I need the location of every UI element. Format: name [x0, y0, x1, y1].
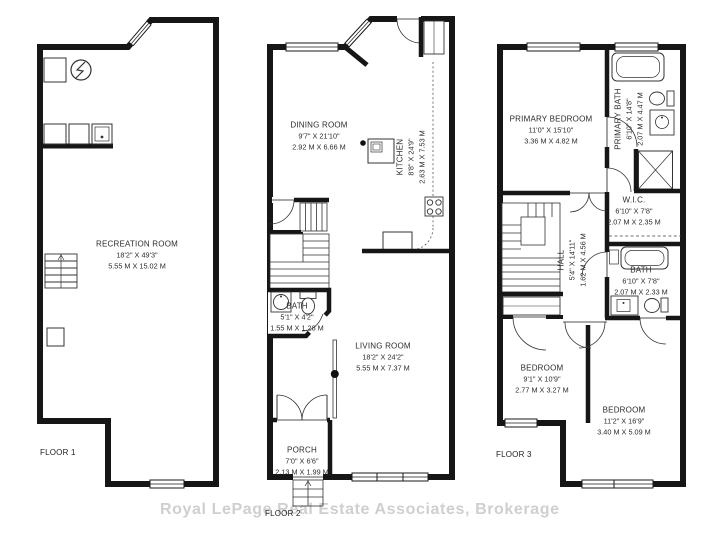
room-label-hall: HALL 5'4" X 14'11" 1.62 M X 4.56 M	[557, 233, 588, 287]
watermark: Royal LePage Real Estate Associates, Bro…	[160, 501, 558, 519]
room-label-bath-floor2: BATH 5'1" X 4'2" 1.55 M X 1.28 M	[270, 302, 324, 333]
room-label-kitchen: KITCHEN 8'8" X 24'9" 2.63 M X 7.53 M	[396, 130, 427, 184]
room-label-wic: W.I.C. 6'10" X 7'8" 2.07 M X 2.35 M	[607, 196, 661, 227]
vanity-sink	[611, 296, 638, 315]
mechanical-box	[47, 328, 64, 346]
shower	[636, 149, 673, 191]
room-label-dining-room: DINING ROOM 9'7" X 21'10" 2.92 M X 6.66 …	[290, 121, 347, 152]
bathtub	[612, 53, 664, 81]
room-label-bedroom-small: BEDROOM 9'1" X 10'9" 2.77 M X 3.27 M	[515, 364, 569, 395]
floor-1-bottom-window	[150, 480, 184, 488]
living-room-windows	[352, 473, 428, 481]
kitchen-peninsula	[383, 232, 412, 250]
room-label-recreation-room: RECREATION ROOM 18'2" X 49'3" 5.55 M X 1…	[96, 240, 178, 271]
room-label-primary-bath: PRIMARY BATH 6'10" X 14'8" 2.07 M X 4.47…	[614, 88, 645, 150]
room-label-bedroom-large: BEDROOM 11'2" X 16'9" 3.40 M X 5.09 M	[597, 406, 651, 437]
floor-1-label: FLOOR 1	[40, 448, 76, 457]
room-label-living-room: LIVING ROOM 18'2" X 24'2" 5.55 M X 7.37 …	[355, 342, 411, 373]
laundry-appliances	[44, 124, 112, 144]
utility-box	[44, 58, 66, 82]
stove	[425, 197, 443, 216]
vanity-sink	[650, 110, 674, 135]
floor-1-stairs	[45, 254, 77, 288]
room-label-porch: PORCH 7'0" X 6'6" 2.13 M X 1.99 M	[275, 446, 329, 477]
toilet	[650, 91, 675, 106]
floor-3-label: FLOOR 3	[496, 450, 532, 459]
room-label-bath-floor3: BATH 6'10" X 7'8" 2.07 M X 2.33 M	[614, 266, 668, 297]
entry-closet	[421, 17, 444, 57]
dining-window	[286, 43, 338, 51]
toilet	[645, 298, 669, 313]
floor-2-plan	[268, 17, 452, 506]
room-label-primary-bedroom: PRIMARY BEDROOM 11'0" X 15'10" 3.36 M X …	[510, 115, 593, 146]
floor-3-stairs	[502, 203, 560, 292]
